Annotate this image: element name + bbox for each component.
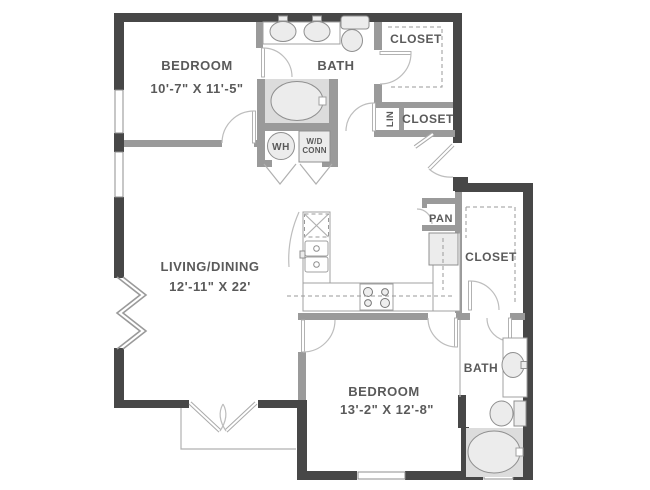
pantry-label: PAN <box>429 213 453 225</box>
bedroom2-dims: 13'-2" X 12'-8" <box>340 402 434 417</box>
window-bottom-1 <box>358 472 405 479</box>
tub-faucet <box>319 97 326 105</box>
living-label: LIVING/DINING <box>161 259 260 274</box>
toilet-icon <box>490 401 513 426</box>
bedroom2-door-living <box>302 320 305 352</box>
closet-top-door <box>380 52 411 55</box>
linen-label: LIN <box>385 111 396 127</box>
bay-window-inner <box>123 277 146 349</box>
window-left-1 <box>115 90 123 133</box>
living-dims: 12'-11" X 22' <box>169 279 251 294</box>
bedroom1-label: BEDROOM <box>161 58 232 73</box>
bedroom1-dims: 10'-7" X 11'-5" <box>150 81 243 96</box>
closet-main-door <box>469 281 472 310</box>
wd-conn-label-1: W/D <box>306 137 322 146</box>
bathtub-icon <box>271 82 323 121</box>
kitchen-hall-arc <box>289 212 299 267</box>
faucet-icon <box>313 16 322 21</box>
bathtub-icon <box>468 431 520 473</box>
faucet-icon <box>521 362 527 369</box>
toilet-tank <box>514 401 526 426</box>
floor-plan-page: BEDROOM 10'-7" X 11'-5" BATH CLOSET LIN … <box>0 0 650 490</box>
hall-door <box>373 103 376 131</box>
faucet-icon <box>279 16 288 21</box>
bath2-label: BATH <box>464 361 498 375</box>
window-left-2 <box>115 152 123 197</box>
closet-hall-label: CLOSET <box>402 112 454 126</box>
tub-faucet <box>516 448 523 456</box>
bedroom2-label: BEDROOM <box>348 384 419 399</box>
wd-conn-label-2: CONN <box>302 146 326 155</box>
toilet-icon <box>342 30 363 52</box>
kitchen-sink-icon <box>305 257 328 272</box>
closet-main-label: CLOSET <box>465 250 517 264</box>
patio-outline <box>181 408 296 449</box>
closet-top-label: CLOSET <box>390 32 442 46</box>
bath1-door <box>262 48 265 77</box>
faucet-icon <box>300 251 305 258</box>
bath1-label: BATH <box>317 58 354 73</box>
kitchen-sink-icon <box>305 241 328 256</box>
bedroom2-door-hall <box>455 318 458 347</box>
sink-icon <box>304 22 330 42</box>
floor-plan: BEDROOM 10'-7" X 11'-5" BATH CLOSET LIN … <box>0 0 650 490</box>
bedroom1-door <box>253 111 256 143</box>
sink-icon <box>270 22 296 42</box>
shelf <box>341 16 369 29</box>
water-heater-label: WH <box>272 142 290 153</box>
bath2-fixtures <box>466 338 527 477</box>
